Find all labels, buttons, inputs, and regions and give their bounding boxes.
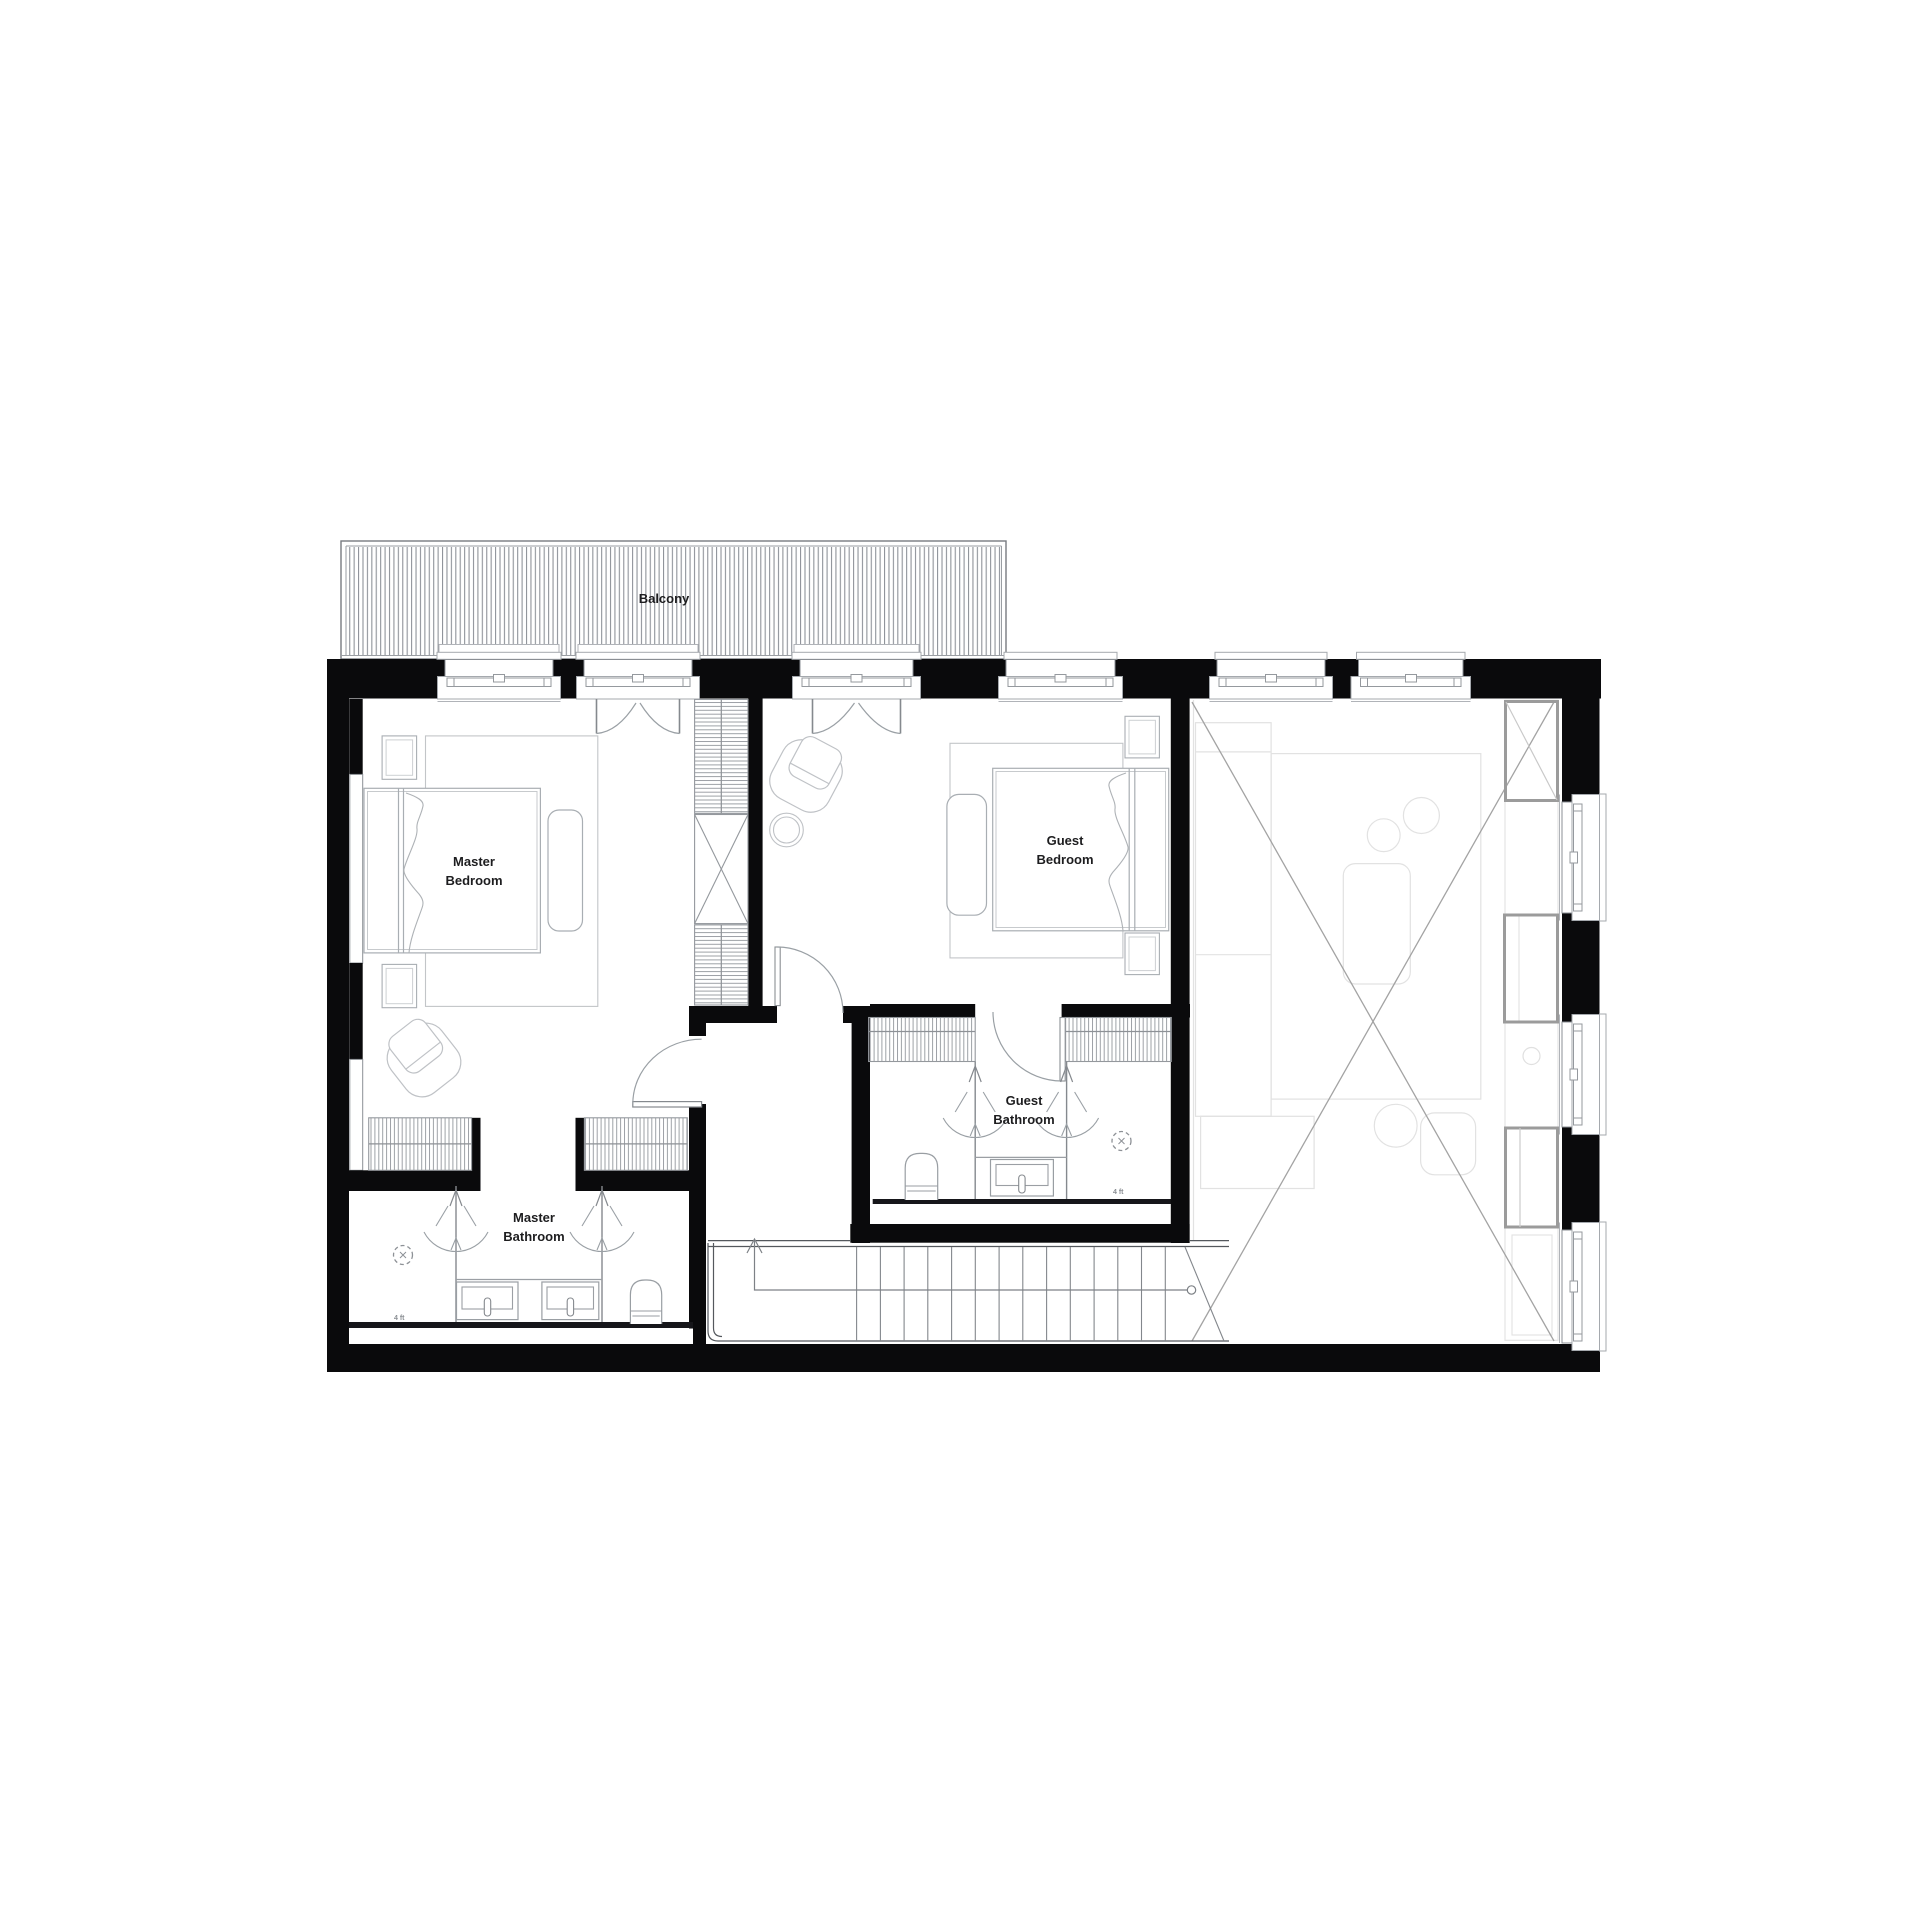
svg-text:4 ft: 4 ft [394,1315,405,1322]
svg-text:Guest: Guest [1047,833,1085,848]
svg-text:Bedroom: Bedroom [445,873,502,888]
svg-text:Guest: Guest [1006,1093,1044,1108]
svg-text:Master: Master [513,1210,555,1225]
svg-text:Bathroom: Bathroom [993,1112,1054,1127]
svg-text:Balcony: Balcony [639,591,690,606]
svg-text:Bathroom: Bathroom [503,1229,564,1244]
svg-text:4 ft: 4 ft [1113,1189,1124,1196]
svg-text:Bedroom: Bedroom [1036,852,1093,867]
svg-text:Master: Master [453,854,495,869]
